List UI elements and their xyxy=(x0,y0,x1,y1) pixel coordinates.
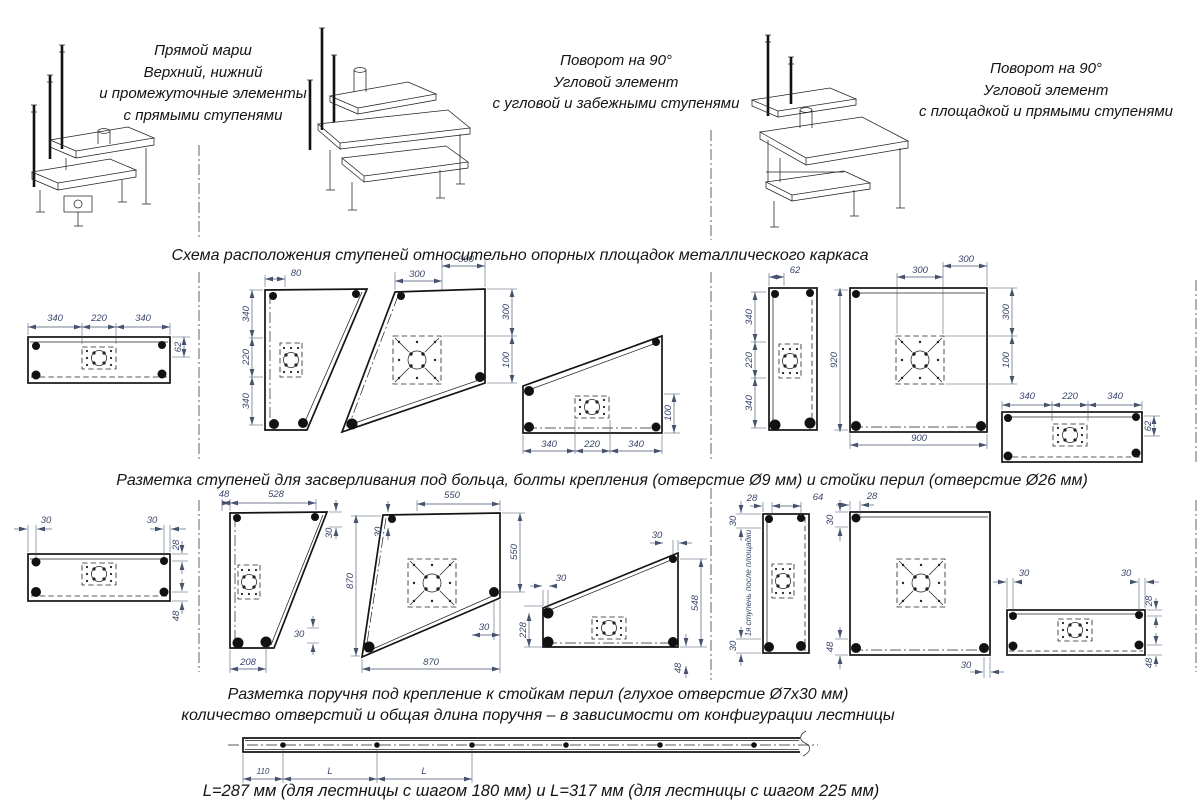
caption-line: и промежуточные элементы xyxy=(99,83,307,105)
plan-straight-step-after-platform-layout: 340 220 340 62 xyxy=(1002,391,1160,462)
dim-label: 548 xyxy=(690,594,701,611)
dim-label: 48 xyxy=(171,610,182,621)
plan-straight-step-layout: 340 220 340 62 xyxy=(28,313,190,383)
dim-label: 300 xyxy=(409,269,426,280)
dim-label: 870 xyxy=(345,572,356,589)
iso-corner-winder xyxy=(307,28,470,210)
dim-label: 220 xyxy=(241,348,252,366)
dim-label: 228 xyxy=(518,621,529,639)
caption-line: Верхний, нижний xyxy=(99,62,307,84)
drill-first-step-after-platform: 28 64 30 30 1я ступень после площадки xyxy=(728,492,823,666)
caption-line: с прямыми ступенями xyxy=(99,105,307,127)
section-header-layout: Схема расположения ступеней относительно… xyxy=(172,245,869,266)
drill-exit-step: 30 30 228 548 48 xyxy=(518,530,707,678)
dim-label: 340 xyxy=(744,308,755,325)
dim-label: 300 xyxy=(912,265,929,276)
drill-straight-step-after-platform: 30 30 28 48 xyxy=(993,568,1162,668)
dim-label: 340 xyxy=(241,305,252,322)
dim-label: 300 xyxy=(501,303,512,320)
dim-label: 48 xyxy=(1144,657,1155,668)
bolt-holes xyxy=(770,289,816,431)
caption-line: Угловой элемент xyxy=(493,72,740,94)
technical-drawing-page: 340 220 340 62 80 340 220 340 3 xyxy=(0,0,1200,809)
dim-label: 48 xyxy=(673,662,684,673)
dim-label: 550 xyxy=(509,543,520,560)
dim-label: 900 xyxy=(911,433,928,444)
plan-platform-layout: 300 300 300 100 920 900 xyxy=(829,254,1017,449)
note-first-step: 1я ступень после площадки xyxy=(744,529,753,636)
dim-label: 100 xyxy=(663,404,674,421)
bolt-holes xyxy=(543,555,679,648)
drill-platform: 28 30 48 30 xyxy=(825,491,1004,678)
bolt-holes xyxy=(1004,413,1141,461)
plan-corner-step-layout: 300 300 300 100 xyxy=(342,254,517,432)
caption-line: Поворот на 90° xyxy=(919,58,1173,80)
plan-winder-step-layout: 80 340 220 340 xyxy=(241,268,367,430)
caption-straight-march: Прямой марш Верхний, нижний и промежуточ… xyxy=(99,40,307,126)
dim-label: 300 xyxy=(1001,303,1012,320)
dim-label: 340 xyxy=(744,394,755,411)
bolt-holes xyxy=(347,292,486,430)
dim-label: L xyxy=(327,766,332,777)
dim-label: 100 xyxy=(501,351,512,368)
dim-label: 340 xyxy=(241,392,252,409)
bolt-holes xyxy=(764,514,806,652)
dim-label: 30 xyxy=(373,526,384,537)
bolt-holes xyxy=(851,290,986,431)
dim-label: 30 xyxy=(41,515,52,526)
dim-label: 30 xyxy=(479,622,490,633)
bolt-holes xyxy=(851,514,989,654)
drill-winder-step: 48 528 30 208 30 xyxy=(219,489,342,673)
caption-line: Поворот на 90° xyxy=(493,50,740,72)
dim-label: 80 xyxy=(291,268,302,279)
caption-corner-platform: Поворот на 90° Угловой элемент с площадк… xyxy=(919,58,1173,123)
dim-label: 62 xyxy=(173,341,184,352)
dim-label: 220 xyxy=(583,439,601,450)
dim-label: 340 xyxy=(47,313,64,324)
section-header-drilling: Разметка ступеней для засверливания под … xyxy=(116,470,1088,491)
caption-line: Угловой элемент xyxy=(919,80,1173,102)
dim-label: 30 xyxy=(825,514,836,525)
dim-label: 340 xyxy=(135,313,152,324)
section-header-handrail-2: количество отверстий и общая длина поруч… xyxy=(181,705,894,726)
plan-exit-step-layout: 340 220 340 100 xyxy=(523,336,680,454)
dim-label: 30 xyxy=(1121,568,1132,579)
dim-label: L xyxy=(421,766,426,777)
caption-line: Прямой марш xyxy=(99,40,307,62)
dim-label: 62 xyxy=(790,265,801,276)
dim-label: 30 xyxy=(147,515,158,526)
section-header-handrail-1: Разметка поручня под крепление к стойкам… xyxy=(228,684,849,705)
dim-label: 208 xyxy=(239,657,257,668)
dim-label: 220 xyxy=(1061,391,1079,402)
dim-label: 30 xyxy=(1019,568,1030,579)
iso-corner-platform xyxy=(752,35,908,227)
dim-label: 30 xyxy=(556,573,567,584)
bolt-holes xyxy=(1009,611,1144,651)
dim-label: 30 xyxy=(728,640,739,651)
dim-label: 340 xyxy=(1019,391,1036,402)
drill-straight-step: 30 30 28 48 xyxy=(14,515,188,621)
dim-label: 28 xyxy=(746,493,758,504)
break-symbol xyxy=(801,731,810,756)
dim-label: 64 xyxy=(813,492,824,503)
dim-label: 340 xyxy=(1107,391,1124,402)
bolt-holes xyxy=(233,513,320,649)
dim-label: 28 xyxy=(171,539,182,551)
dim-label: 220 xyxy=(744,351,755,369)
dim-label: 28 xyxy=(866,491,878,502)
handrail-drawing: 110 L L xyxy=(228,731,818,783)
dim-label: 28 xyxy=(1144,595,1155,607)
dim-label: 920 xyxy=(829,351,840,368)
dim-label: 30 xyxy=(294,629,305,640)
dim-label: 30 xyxy=(961,660,972,671)
handrail-length-formula: L=287 мм (для лестницы с шагом 180 мм) и… xyxy=(203,782,880,801)
dim-label: 550 xyxy=(444,490,461,501)
dim-label: 110 xyxy=(257,767,270,776)
dim-label: 300 xyxy=(958,254,975,265)
dim-label: 30 xyxy=(728,515,739,526)
dim-label: 870 xyxy=(423,657,440,668)
dim-label: 48 xyxy=(825,641,836,652)
dim-label: 62 xyxy=(1143,420,1154,431)
dim-label: 340 xyxy=(628,439,645,450)
caption-line: с площадкой и прямыми ступенями xyxy=(919,101,1173,123)
dim-label: 30 xyxy=(652,530,663,541)
dim-label: 100 xyxy=(1001,351,1012,368)
dim-label: 340 xyxy=(541,439,558,450)
caption-line: с угловой и забежными ступенями xyxy=(493,93,740,115)
caption-corner-winder: Поворот на 90° Угловой элемент с угловой… xyxy=(493,50,740,115)
dim-label: 30 xyxy=(324,527,335,538)
bolt-holes xyxy=(269,290,360,429)
drill-corner-step: 550 30 870 550 870 30 xyxy=(345,490,525,673)
dim-label: 220 xyxy=(90,313,108,324)
bolt-holes xyxy=(32,341,167,380)
plan-platform-side-step-layout: 62 340 220 340 xyxy=(744,265,817,431)
